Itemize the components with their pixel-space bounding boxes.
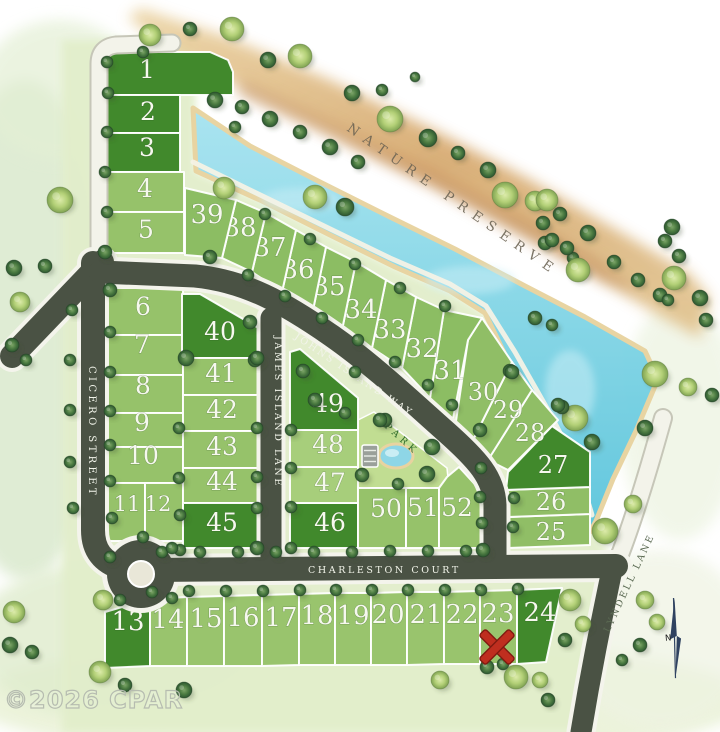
tree-highlight <box>634 276 638 280</box>
lot-40-number: 40 <box>204 317 236 346</box>
lot-39-number: 39 <box>190 200 223 230</box>
tree <box>460 545 472 557</box>
tree-highlight <box>667 222 672 227</box>
tree-highlight <box>509 670 516 677</box>
tree-highlight <box>287 464 291 468</box>
tree-highlight <box>448 401 452 405</box>
tree <box>93 590 113 610</box>
lot-7[interactable]: 7 <box>108 330 183 375</box>
tree-highlight <box>640 423 645 428</box>
tree <box>366 584 378 596</box>
tree-highlight <box>514 585 518 589</box>
tree <box>213 177 235 199</box>
tree <box>98 245 112 259</box>
lot-3-number: 3 <box>139 133 155 162</box>
tree <box>137 46 149 58</box>
lot-46-number: 46 <box>314 508 346 537</box>
tree-highlight <box>296 128 300 132</box>
tree <box>316 312 328 324</box>
tree-highlight <box>175 474 179 478</box>
tree-highlight <box>424 381 428 385</box>
tree-highlight <box>272 548 276 552</box>
lot-8[interactable]: 8 <box>108 371 183 413</box>
tree-highlight <box>412 74 415 77</box>
tree-highlight <box>263 55 268 60</box>
lot-48-number: 48 <box>312 430 344 459</box>
lot-47-number: 47 <box>314 468 346 497</box>
tree <box>64 404 76 416</box>
lot-32-number: 32 <box>405 334 438 364</box>
tree <box>389 356 401 368</box>
tree-highlight <box>299 367 303 371</box>
tree <box>99 166 111 178</box>
tree <box>439 584 451 596</box>
lot-20[interactable]: 20 <box>371 592 407 665</box>
tree <box>492 182 518 208</box>
tree <box>637 420 653 436</box>
tree-highlight <box>497 187 505 195</box>
lot-44-number: 44 <box>206 467 238 496</box>
tree-highlight <box>106 286 110 290</box>
tree <box>64 354 76 366</box>
tree <box>251 422 263 434</box>
lot-17[interactable]: 17 <box>262 594 299 666</box>
tree <box>346 546 358 558</box>
tree <box>3 601 25 623</box>
lot-10[interactable]: 10 <box>108 441 183 483</box>
lot-4-number: 4 <box>137 174 153 203</box>
tree-highlight <box>571 263 578 270</box>
tree <box>20 354 32 366</box>
tree <box>250 541 264 555</box>
tree <box>475 584 487 596</box>
lot-22-number: 22 <box>445 600 478 630</box>
tree <box>296 364 310 378</box>
park-pond-glint <box>385 449 399 457</box>
tree <box>250 351 264 365</box>
lot-48[interactable]: 48 <box>290 430 358 467</box>
charleston-court-label: CHARLESTON COURT <box>308 565 461 576</box>
lot-47[interactable]: 47 <box>290 467 358 503</box>
tree <box>451 146 465 160</box>
tree <box>104 366 116 378</box>
tree <box>508 492 520 504</box>
tree-highlight <box>539 219 543 223</box>
tree <box>692 290 708 306</box>
tree <box>279 290 291 302</box>
tree-highlight <box>376 416 380 420</box>
lot-22[interactable]: 22 <box>444 591 480 664</box>
tree-highlight <box>702 316 706 320</box>
tree <box>607 255 621 269</box>
lot-1-parcel[interactable] <box>105 52 233 95</box>
tree-highlight <box>529 195 535 201</box>
tree-highlight <box>106 368 110 372</box>
lot-4[interactable]: 4 <box>105 172 184 212</box>
tree-highlight <box>231 123 235 127</box>
tree <box>439 300 451 312</box>
tree <box>178 350 194 366</box>
tree-highlight <box>14 296 20 302</box>
tree-highlight <box>52 192 60 200</box>
lot-15-number: 15 <box>189 604 222 634</box>
tree-highlight <box>427 442 432 447</box>
tree-highlight <box>561 636 565 640</box>
tree-highlight <box>510 494 514 498</box>
tree <box>104 551 116 563</box>
tree-highlight <box>476 426 480 430</box>
lot-21[interactable]: 21 <box>407 592 444 665</box>
tree-highlight <box>354 158 358 162</box>
tree-highlight <box>341 409 345 413</box>
lot-3[interactable]: 3 <box>105 133 180 172</box>
tree <box>431 671 449 689</box>
tree <box>104 326 116 338</box>
tree-highlight <box>176 511 180 515</box>
tree <box>551 398 565 412</box>
tree <box>373 413 387 427</box>
tree-highlight <box>168 594 172 598</box>
tree-highlight <box>22 356 26 360</box>
tree-highlight <box>281 292 285 296</box>
lot-16-number: 16 <box>226 603 259 633</box>
tree-highlight <box>103 208 107 212</box>
tree-highlight <box>106 477 110 481</box>
tree-highlight <box>168 544 172 548</box>
tree-highlight <box>404 586 408 590</box>
tree-highlight <box>139 48 143 52</box>
tree-highlight <box>368 586 372 590</box>
lot-9-number: 9 <box>134 408 150 437</box>
tree-highlight <box>587 437 592 442</box>
lot-2[interactable]: 2 <box>105 95 180 133</box>
tree <box>259 208 271 220</box>
tree <box>419 129 437 147</box>
tree <box>173 422 185 434</box>
tree <box>25 645 39 659</box>
tree-highlight <box>499 660 503 664</box>
tree-highlight <box>101 248 105 252</box>
tree-highlight <box>244 271 248 275</box>
tree-highlight <box>259 587 263 591</box>
tree-highlight <box>441 586 445 590</box>
tree-highlight <box>652 617 657 622</box>
lot-27-number: 27 <box>538 451 569 479</box>
lot-16[interactable]: 16 <box>224 595 262 666</box>
tree-highlight <box>351 368 355 372</box>
tree <box>351 155 365 169</box>
tree <box>285 462 297 474</box>
tree-highlight <box>97 594 103 600</box>
james-island-lane-label: JAMES ISLAND LANE <box>272 335 283 488</box>
tree-highlight <box>217 181 224 188</box>
tree <box>528 311 542 325</box>
tree <box>566 258 590 282</box>
tree <box>545 233 559 247</box>
tree <box>349 258 361 270</box>
lot-20-number: 20 <box>371 600 404 630</box>
tree <box>699 313 713 327</box>
tree-highlight <box>610 258 614 262</box>
tree <box>104 439 116 451</box>
lot-43[interactable]: 43 <box>183 431 258 468</box>
tree <box>636 591 654 609</box>
lot-5-number: 5 <box>138 215 154 244</box>
tree <box>624 495 642 513</box>
tree <box>207 92 223 108</box>
tree-highlight <box>103 58 107 62</box>
tree <box>101 126 113 138</box>
tree-highlight <box>28 648 32 652</box>
tree-highlight <box>454 149 458 153</box>
tree <box>285 424 297 436</box>
tree <box>146 586 158 598</box>
lot-7-number: 7 <box>134 330 150 359</box>
tree <box>139 24 161 46</box>
tree <box>67 502 79 514</box>
lot-5[interactable]: 5 <box>105 212 184 253</box>
tree <box>536 189 558 211</box>
tree-highlight <box>563 593 570 600</box>
lot-50[interactable]: 50 <box>358 488 406 548</box>
tree-highlight <box>310 548 314 552</box>
tree <box>580 225 596 241</box>
tree <box>662 266 686 290</box>
tree-highlight <box>478 519 482 523</box>
tree-highlight <box>548 236 552 240</box>
tree <box>422 545 434 557</box>
tree-highlight <box>441 302 445 306</box>
tree-highlight <box>9 263 14 268</box>
tree-highlight <box>508 368 512 372</box>
tree-highlight <box>185 587 189 591</box>
tree-highlight <box>93 665 100 672</box>
lot-23-number: 23 <box>481 599 514 629</box>
tree <box>546 319 558 331</box>
lot-45[interactable]: 45 <box>183 503 258 548</box>
tree <box>575 616 591 632</box>
tree <box>384 545 396 557</box>
tree-highlight <box>158 548 162 552</box>
tree <box>642 361 668 387</box>
tree-highlight <box>121 681 125 685</box>
tree <box>243 315 257 329</box>
tree-highlight <box>578 619 583 624</box>
cicero-street-label: CICERO STREET <box>86 366 97 498</box>
tree-highlight <box>483 165 488 170</box>
lot-30-number: 30 <box>468 378 499 406</box>
lot-18[interactable]: 18 <box>299 593 335 665</box>
tree <box>308 393 322 407</box>
tree <box>229 121 241 133</box>
lot-42[interactable]: 42 <box>183 395 258 431</box>
tree-highlight <box>424 547 428 551</box>
tree-highlight <box>66 406 70 410</box>
tree <box>402 584 414 596</box>
lot-51[interactable]: 51 <box>406 488 439 548</box>
lot-12-number: 12 <box>145 492 172 516</box>
tree <box>104 475 116 487</box>
tree-highlight <box>206 253 210 257</box>
tree-highlight <box>435 675 440 680</box>
tree-highlight <box>238 103 242 107</box>
tree-highlight <box>667 271 674 278</box>
tree-highlight <box>225 22 232 29</box>
tree-highlight <box>347 88 352 93</box>
tree-highlight <box>175 424 179 428</box>
tree-highlight <box>695 293 700 298</box>
tree <box>285 501 297 513</box>
tree-highlight <box>664 296 668 300</box>
tree <box>220 17 244 41</box>
tree-highlight <box>541 239 545 243</box>
tree <box>507 521 519 533</box>
tree <box>101 206 113 218</box>
tree-highlight <box>683 382 688 387</box>
tree <box>473 423 487 437</box>
tree-highlight <box>422 469 427 474</box>
tree-highlight <box>708 391 712 395</box>
tree <box>38 259 52 273</box>
tree-highlight <box>391 358 395 362</box>
tree-highlight <box>531 314 535 318</box>
tree <box>662 294 674 306</box>
tree <box>232 546 244 558</box>
tree-highlight <box>340 202 345 207</box>
tree-highlight <box>423 133 428 138</box>
tree <box>658 234 672 248</box>
tree-highlight <box>253 544 257 548</box>
tree <box>104 405 116 417</box>
tree <box>558 633 572 647</box>
tree <box>705 388 719 402</box>
lot-46[interactable]: 46 <box>290 503 358 548</box>
tree-highlight <box>479 546 483 550</box>
tree <box>6 260 22 276</box>
tree <box>422 379 434 391</box>
tree-highlight <box>253 504 257 508</box>
tree-highlight <box>253 473 257 477</box>
lot-1[interactable]: 1 <box>105 52 233 95</box>
tree-highlight <box>661 237 665 241</box>
tree <box>633 638 647 652</box>
tree <box>649 614 665 630</box>
tree <box>304 233 316 245</box>
tree <box>355 468 369 482</box>
lot-19[interactable]: 19 <box>335 593 371 665</box>
tree-highlight <box>106 441 110 445</box>
tree <box>64 456 76 468</box>
tree-highlight <box>196 548 200 552</box>
tree-highlight <box>386 547 390 551</box>
tree <box>679 378 697 396</box>
tree-highlight <box>351 260 355 264</box>
tree <box>616 654 628 666</box>
lot-15[interactable]: 15 <box>187 596 224 666</box>
tree <box>474 491 486 503</box>
tree <box>392 478 404 490</box>
tree-highlight <box>69 504 73 508</box>
tree <box>103 283 117 297</box>
tree <box>394 282 406 294</box>
lot-10-number: 10 <box>127 441 159 470</box>
tree <box>251 502 263 514</box>
tree <box>260 52 276 68</box>
tree-highlight <box>143 28 150 35</box>
tree-highlight <box>477 586 481 590</box>
tree-highlight <box>265 114 270 119</box>
tree <box>285 542 297 554</box>
tree-highlight <box>656 291 660 295</box>
tree-highlight <box>535 675 540 680</box>
lot-2-number: 2 <box>140 97 156 126</box>
tree <box>102 87 114 99</box>
tree <box>672 249 686 263</box>
tree <box>352 334 364 346</box>
lot-19-number: 19 <box>336 601 369 631</box>
tree <box>257 585 269 597</box>
lot-44[interactable]: 44 <box>183 467 258 503</box>
tree <box>220 585 232 597</box>
tree <box>5 338 19 352</box>
tree <box>592 518 618 544</box>
tree <box>242 269 254 281</box>
tree <box>476 517 488 529</box>
tree-highlight <box>563 244 567 248</box>
tree <box>183 585 195 597</box>
tree-highlight <box>108 514 112 518</box>
tree <box>262 111 278 127</box>
tree-highlight <box>318 314 322 318</box>
tree-highlight <box>675 252 679 256</box>
tree-highlight <box>332 586 336 590</box>
tree <box>293 125 307 139</box>
tree-highlight <box>548 321 552 325</box>
tree <box>47 187 73 213</box>
tree <box>419 466 435 482</box>
tree-highlight <box>66 458 70 462</box>
tree <box>541 693 555 707</box>
tree-highlight <box>101 168 105 172</box>
tree-highlight <box>222 587 226 591</box>
tree-highlight <box>311 396 315 400</box>
tree <box>251 471 263 483</box>
tree-highlight <box>636 641 640 645</box>
tree <box>505 365 519 379</box>
tree <box>322 139 338 155</box>
tree-highlight <box>116 596 120 600</box>
lot-43-number: 43 <box>206 432 238 461</box>
tree-highlight <box>5 640 10 645</box>
tree-highlight <box>544 696 548 700</box>
copyright-watermark: ©2026 CPAR <box>4 686 183 714</box>
tree-highlight <box>253 354 257 358</box>
tree-highlight <box>287 426 291 430</box>
tree-highlight <box>597 523 605 531</box>
tree-highlight <box>253 424 257 428</box>
tree <box>10 292 30 312</box>
tree <box>174 509 186 521</box>
lot-26-number: 26 <box>536 488 567 516</box>
tree <box>664 219 680 235</box>
lot-6-number: 6 <box>135 292 151 321</box>
tree-highlight <box>234 548 238 552</box>
tree-highlight <box>106 328 110 332</box>
tree <box>377 106 403 132</box>
tree <box>101 56 113 68</box>
tree <box>512 583 524 595</box>
tree-highlight <box>68 306 72 310</box>
